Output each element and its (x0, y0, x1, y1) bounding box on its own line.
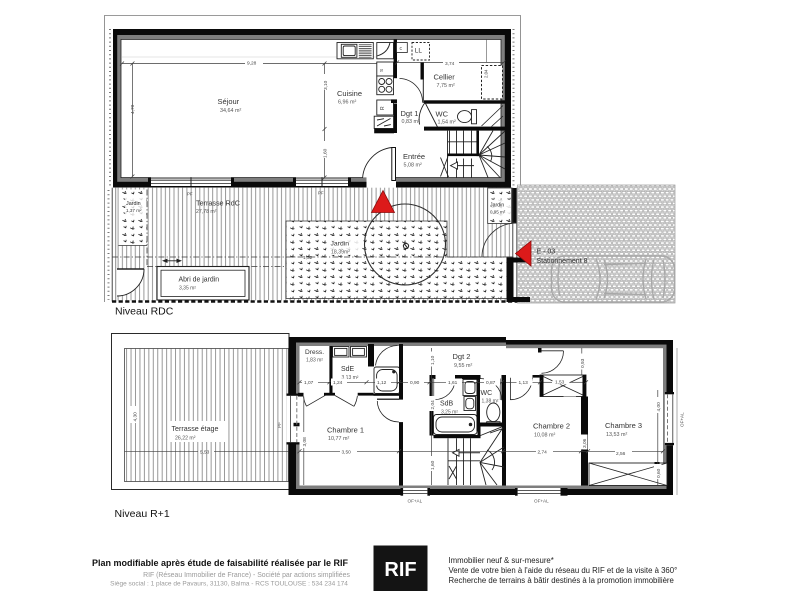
svg-text:1,10: 1,10 (430, 355, 436, 365)
svg-text:34,64 m²: 34,64 m² (220, 108, 241, 114)
svg-text:2,04: 2,04 (484, 69, 489, 78)
svg-text:Cellier: Cellier (434, 73, 456, 82)
svg-text:2,56: 2,56 (616, 451, 626, 457)
svg-text:Jardin: Jardin (331, 241, 350, 248)
svg-text:1,13: 1,13 (519, 380, 529, 386)
svg-text:0,83 m²: 0,83 m² (402, 119, 420, 125)
svg-text:Cuisine: Cuisine (337, 89, 362, 98)
svg-text:4,30: 4,30 (133, 412, 139, 422)
svg-text:SdE: SdE (341, 366, 355, 373)
svg-text:Jardin: Jardin (490, 203, 504, 209)
svg-text:RIF: RIF (384, 559, 416, 581)
svg-text:3,74: 3,74 (445, 61, 455, 67)
svg-text:Terrasse étage: Terrasse étage (172, 425, 219, 433)
svg-text:Immobilier neuf & sur-mesure*: Immobilier neuf & sur-mesure* (449, 556, 554, 565)
svg-text:OF+AL: OF+AL (680, 412, 685, 427)
svg-text:1,07: 1,07 (304, 380, 314, 386)
svg-text:6,96 m²: 6,96 m² (338, 100, 356, 106)
svg-text:1,24: 1,24 (333, 380, 343, 386)
svg-text:LL: LL (415, 48, 423, 55)
svg-text:0,87: 0,87 (486, 380, 496, 386)
svg-text:Niveau RDC: Niveau RDC (115, 306, 174, 318)
svg-text:Entrée: Entrée (403, 152, 425, 161)
svg-text:RIF (Réseau Immobilier de Fran: RIF (Réseau Immobilier de France) - Soci… (143, 572, 350, 579)
svg-text:Séjour: Séjour (218, 97, 240, 106)
svg-text:Niveau R+1: Niveau R+1 (115, 508, 170, 520)
svg-text:Chambre 3: Chambre 3 (605, 421, 642, 430)
svg-text:1,54 m²: 1,54 m² (438, 120, 456, 126)
svg-text:WC: WC (481, 390, 493, 397)
svg-text:Chambre 1: Chambre 1 (327, 426, 364, 435)
svg-text:R: R (380, 106, 386, 110)
svg-text:2,04: 2,04 (430, 400, 436, 410)
svg-text:1,53: 1,53 (555, 380, 565, 386)
svg-text:WC: WC (436, 110, 449, 119)
svg-text:PF: PF (277, 422, 282, 428)
svg-text:0,93: 0,93 (580, 358, 586, 368)
svg-text:0,95 m²: 0,95 m² (490, 210, 506, 215)
svg-text:1,12: 1,12 (377, 380, 387, 386)
svg-text:OF+AL: OF+AL (534, 498, 549, 503)
svg-text:2,74: 2,74 (538, 450, 548, 456)
svg-text:SdB: SdB (440, 401, 454, 408)
svg-text:E - 03: E - 03 (537, 249, 556, 256)
svg-text:9,55 m²: 9,55 m² (454, 363, 472, 369)
svg-text:3,10: 3,10 (323, 80, 329, 90)
svg-text:S: S (379, 69, 384, 72)
svg-text:3,06: 3,06 (582, 438, 588, 448)
svg-text:7,75 m²: 7,75 m² (437, 83, 455, 89)
svg-text:Dgt 2: Dgt 2 (453, 352, 471, 361)
svg-text:Chambre 2: Chambre 2 (533, 422, 570, 431)
svg-text:4,70: 4,70 (130, 104, 136, 114)
svg-text:Vente de votre bien à l'aide d: Vente de votre bien à l'aide du réseau d… (449, 566, 678, 575)
svg-text:0,60: 0,60 (656, 468, 662, 478)
svg-text:3,50: 3,50 (342, 450, 352, 456)
svg-text:1,37 m²: 1,37 m² (126, 208, 142, 213)
svg-text:3,35 m²: 3,35 m² (179, 286, 196, 292)
svg-text:Plan modifiable après étude de: Plan modifiable après étude de faisabili… (92, 558, 349, 568)
svg-text:1,83 m²: 1,83 m² (306, 358, 323, 364)
svg-text:4,00: 4,00 (656, 402, 662, 412)
svg-text:18,39m²: 18,39m² (331, 250, 350, 256)
svg-text:10,08 m²: 10,08 m² (534, 433, 555, 439)
svg-text:PF: PF (187, 192, 193, 197)
svg-text:1,61: 1,61 (448, 380, 458, 386)
svg-text:13,53 m²: 13,53 m² (606, 432, 627, 438)
svg-text:1,52: 1,52 (303, 255, 313, 261)
svg-text:Recherche de terrains à bâtir: Recherche de terrains à bâtir destinés à… (449, 576, 674, 585)
svg-text:Abri de jardin: Abri de jardin (179, 277, 220, 284)
svg-text:Dgt 1: Dgt 1 (401, 109, 419, 118)
svg-text:Stationnement 8: Stationnement 8 (537, 258, 588, 265)
svg-text:27,78 m²: 27,78 m² (196, 209, 217, 215)
svg-text:PF: PF (318, 191, 324, 196)
svg-text:Dress.: Dress. (305, 349, 324, 356)
svg-text:3,08: 3,08 (302, 437, 308, 447)
svg-text:26,22 m²: 26,22 m² (175, 436, 196, 442)
svg-text:1,60: 1,60 (430, 460, 436, 470)
svg-text:10,77 m²: 10,77 m² (328, 436, 349, 442)
svg-text:9,28: 9,28 (247, 61, 257, 67)
svg-text:Terrasse RdC: Terrasse RdC (196, 199, 240, 208)
svg-text:Siège social : 1 place de Pava: Siège social : 1 place de Pavaurs, 31130… (110, 581, 348, 588)
svg-text:1,60: 1,60 (323, 148, 329, 158)
svg-text:5,53: 5,53 (200, 450, 210, 456)
svg-text:5,08 m²: 5,08 m² (404, 163, 422, 169)
svg-text:Jardin: Jardin (126, 201, 141, 207)
svg-text:OF+AL: OF+AL (408, 498, 423, 503)
svg-text:0,90: 0,90 (410, 380, 420, 386)
